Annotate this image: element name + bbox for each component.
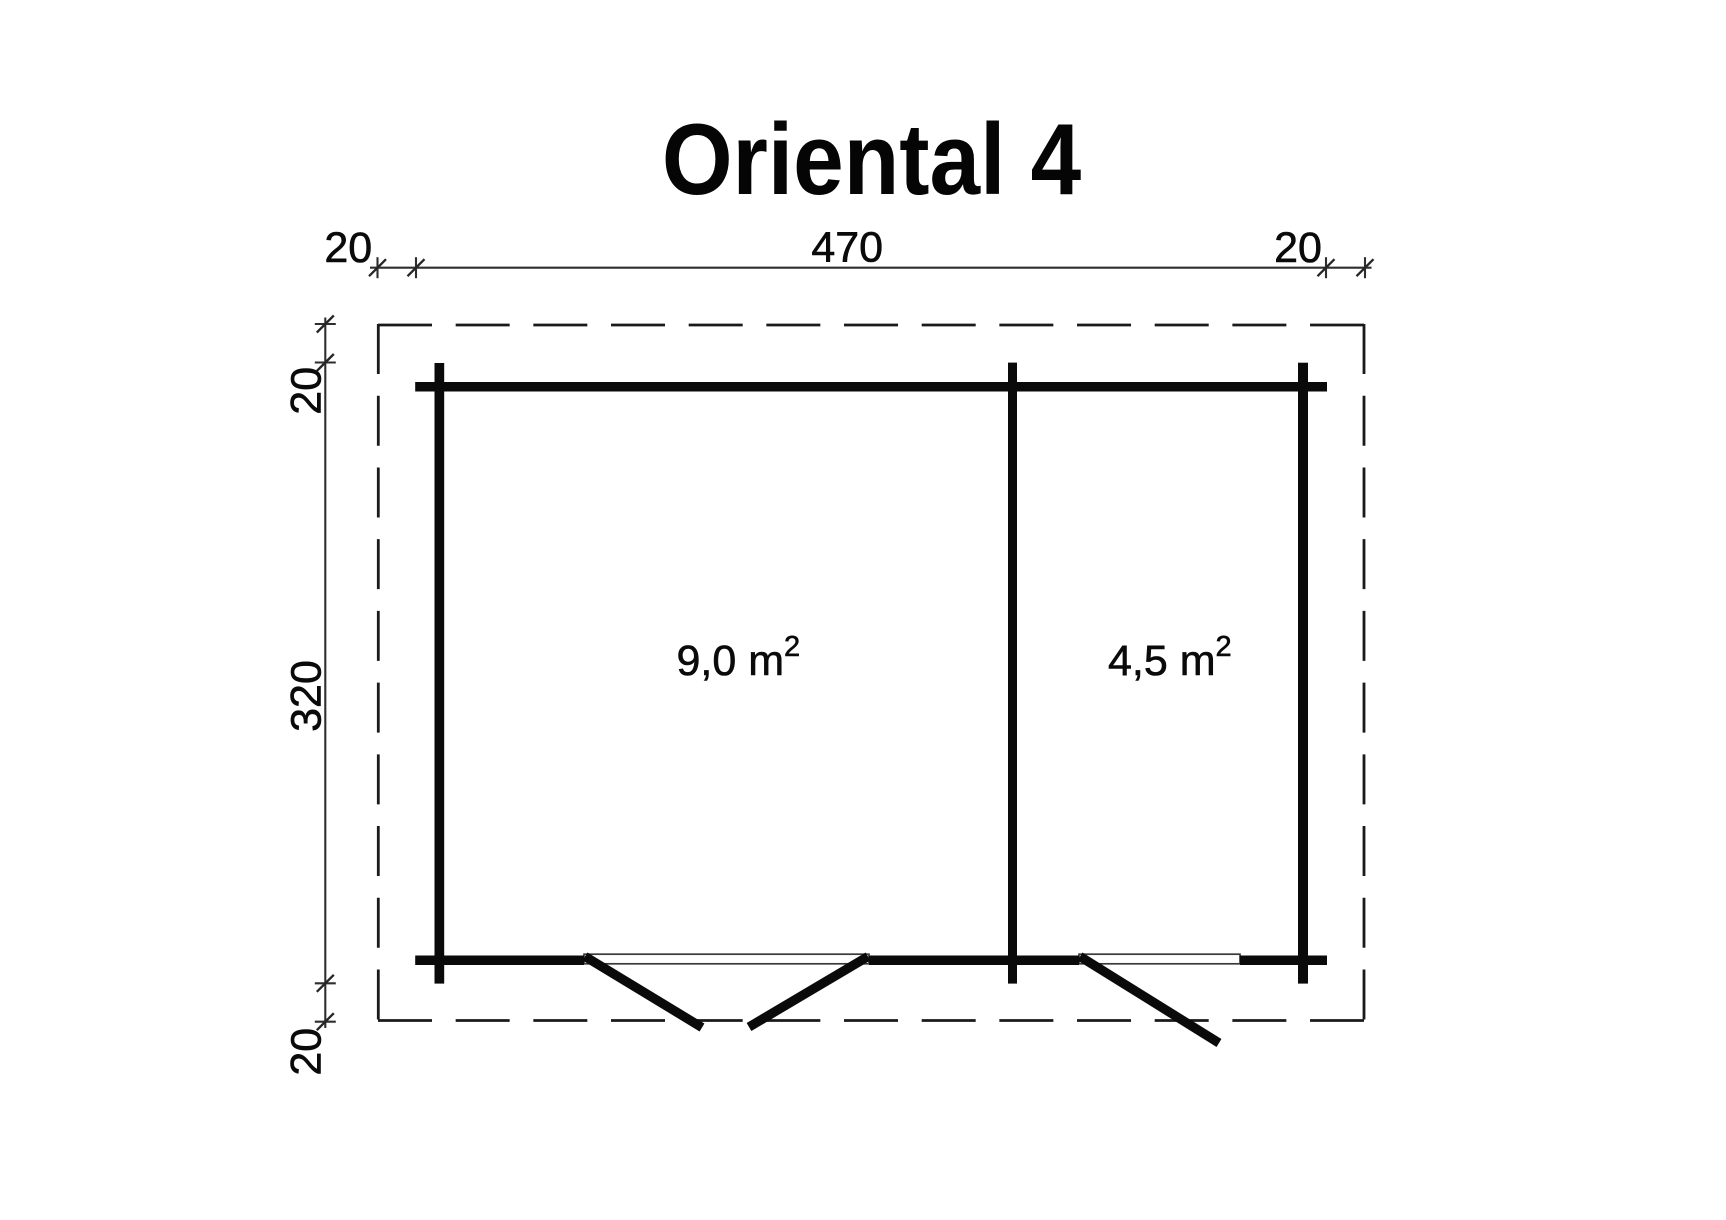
svg-text:20: 20	[283, 1028, 331, 1076]
svg-text:9,0 m2: 9,0 m2	[677, 631, 801, 685]
svg-text:20: 20	[324, 224, 372, 272]
svg-text:20: 20	[283, 367, 331, 415]
svg-text:4,5 m2: 4,5 m2	[1108, 631, 1232, 685]
svg-text:20: 20	[1274, 224, 1322, 272]
svg-text:470: 470	[811, 224, 883, 272]
svg-text:Oriental 4: Oriental 4	[662, 104, 1081, 216]
svg-text:320: 320	[283, 660, 331, 732]
